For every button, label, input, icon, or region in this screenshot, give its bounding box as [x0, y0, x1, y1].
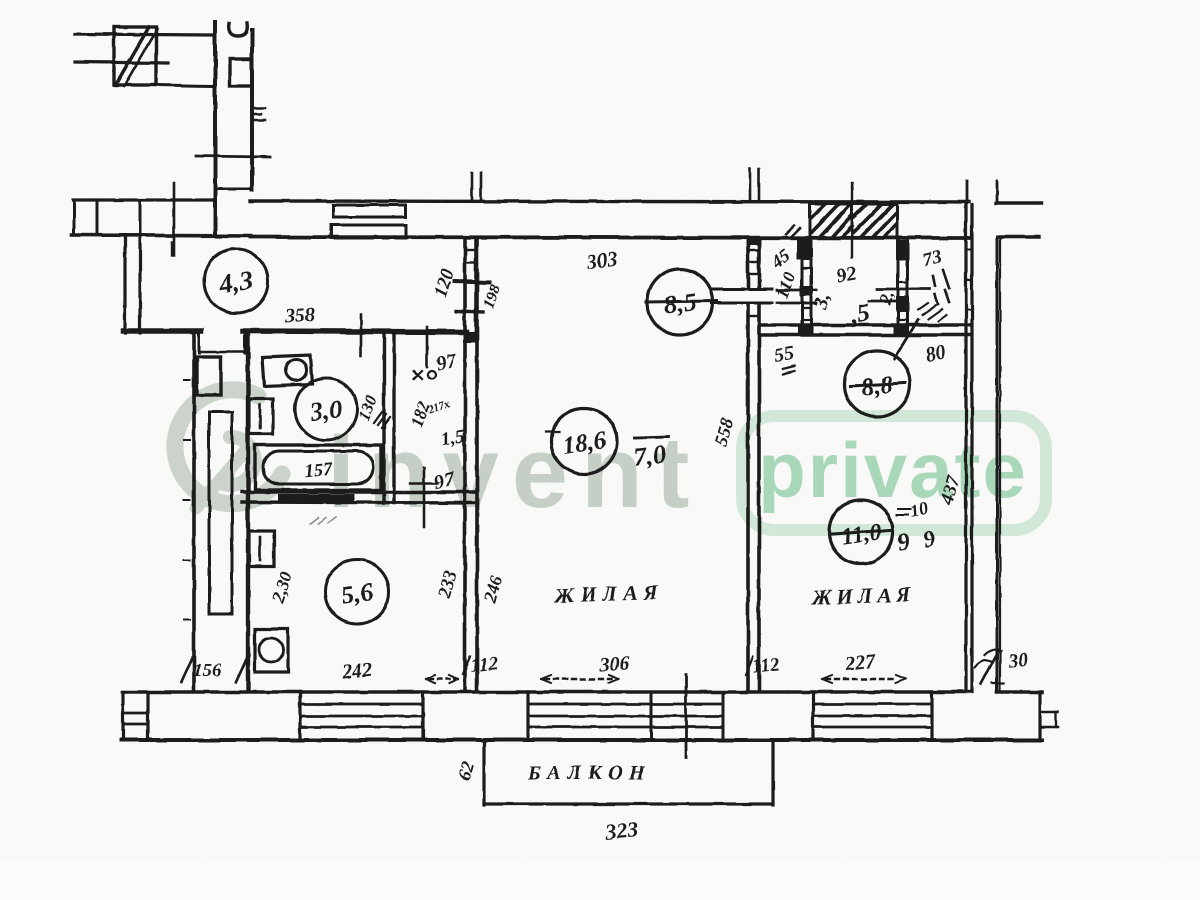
- svg-text:80: 80: [924, 341, 948, 366]
- svg-text:242: 242: [340, 659, 373, 684]
- svg-text:112: 112: [751, 654, 781, 678]
- svg-text:156: 156: [193, 660, 222, 681]
- svg-text:ЖИЛАЯ: ЖИЛАЯ: [553, 580, 664, 608]
- svg-text:55: 55: [773, 342, 797, 367]
- svg-text:92: 92: [835, 262, 859, 287]
- svg-text:8,5: 8,5: [662, 287, 698, 320]
- svg-text:303: 303: [584, 246, 619, 274]
- svg-text:306: 306: [597, 652, 629, 676]
- svg-text:1,5: 1,5: [440, 426, 468, 451]
- svg-text:323: 323: [603, 817, 639, 845]
- svg-text:227: 227: [843, 650, 877, 675]
- svg-text:112: 112: [469, 653, 499, 677]
- svg-text:7,0: 7,0: [632, 440, 667, 472]
- svg-text:358: 358: [283, 303, 315, 327]
- svg-text:5,6: 5,6: [339, 577, 375, 610]
- svg-text:157: 157: [303, 459, 335, 483]
- svg-text:БАЛКОН: БАЛКОН: [527, 762, 652, 784]
- svg-text:3,0: 3,0: [307, 394, 344, 427]
- svg-text:4,3: 4,3: [216, 265, 255, 300]
- svg-text:30: 30: [1006, 649, 1030, 674]
- svg-text:ЖИЛАЯ: ЖИЛАЯ: [810, 582, 916, 610]
